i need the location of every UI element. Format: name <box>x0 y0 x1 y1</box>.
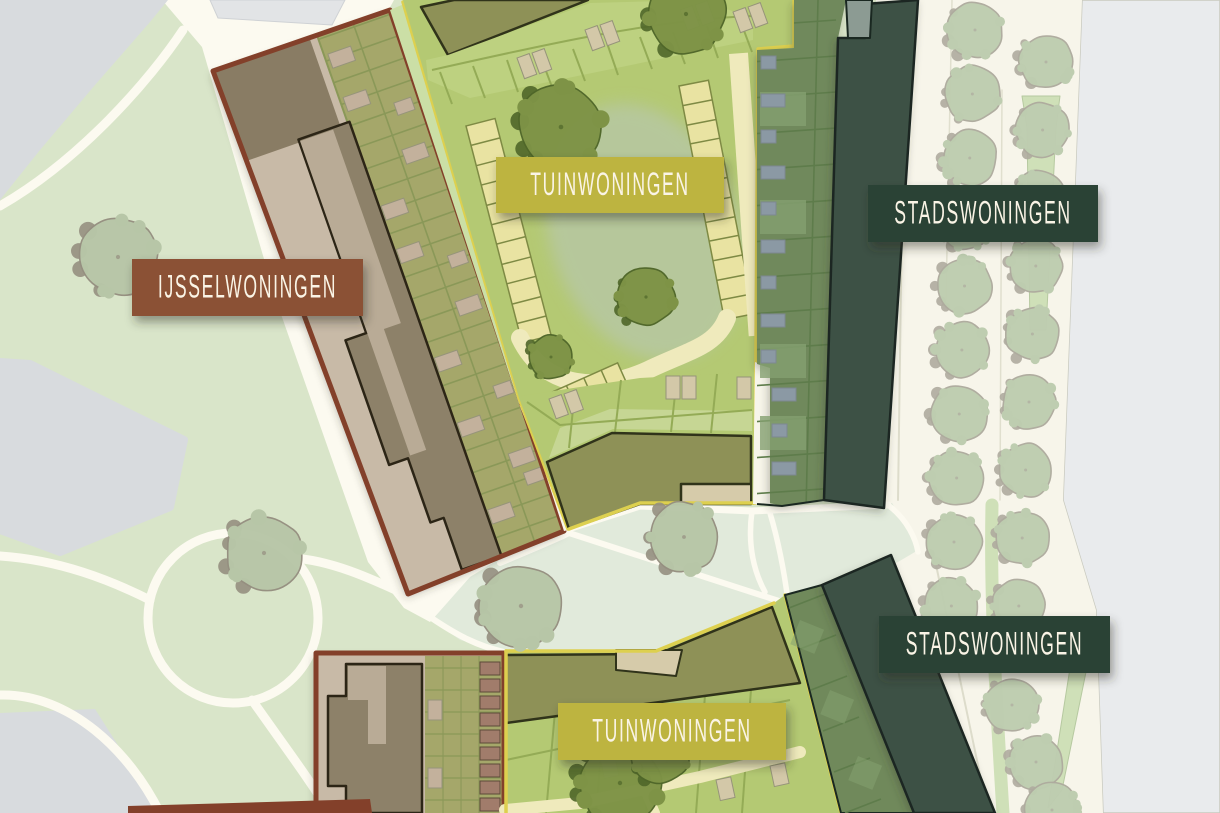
svg-text:TUINWONINGEN: TUINWONINGEN <box>530 168 690 203</box>
svg-text:IJSSELWONINGEN: IJSSELWONINGEN <box>158 270 337 305</box>
svg-text:STADSWONINGEN: STADSWONINGEN <box>894 196 1072 231</box>
svg-text:TUINWONINGEN: TUINWONINGEN <box>592 714 752 749</box>
svg-text:STADSWONINGEN: STADSWONINGEN <box>906 627 1084 662</box>
